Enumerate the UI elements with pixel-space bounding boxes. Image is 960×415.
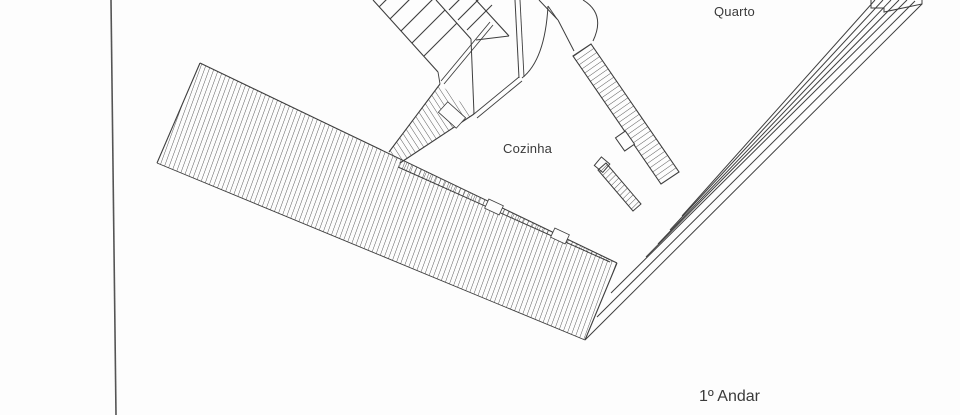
hall-wall — [474, 77, 522, 118]
door-swing-arc — [522, 6, 548, 78]
room-label-cozinha: Cozinha — [503, 141, 552, 156]
floor-plan-drawing — [0, 0, 960, 415]
stair-terrace-wall — [389, 84, 474, 163]
kitchen-wall-stub — [594, 157, 641, 211]
door-swing-arc — [583, 0, 598, 41]
terrace-hatch-band — [157, 63, 617, 340]
quarto-cozinha-wall — [573, 44, 679, 184]
page-border-line — [111, 0, 116, 415]
exterior-wall-fan — [585, 0, 922, 340]
floor-plan-page: Cozinha Quarto 1º Andar — [0, 0, 960, 415]
room-label-quarto: Quarto — [714, 4, 755, 19]
floor-label: 1º Andar — [699, 388, 760, 406]
